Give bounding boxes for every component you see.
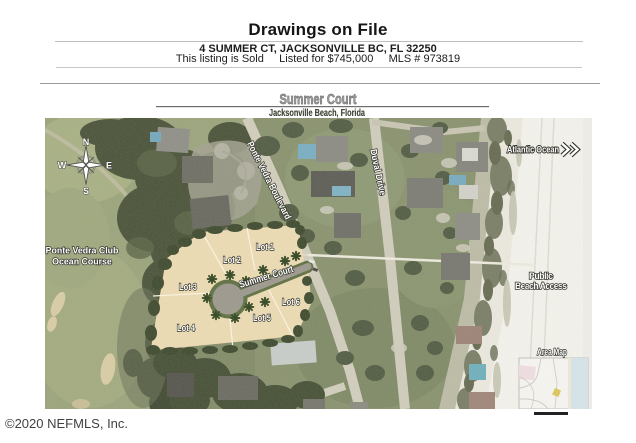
svg-text:E: E <box>106 161 112 171</box>
svg-text:Area Map: Area Map <box>537 347 567 357</box>
svg-text:W: W <box>58 161 67 171</box>
svg-text:Lot 2: Lot 2 <box>223 255 241 265</box>
svg-text:Public: Public <box>529 271 553 281</box>
svg-text:Lot 6: Lot 6 <box>282 297 300 307</box>
svg-text:Summer Court: Summer Court <box>280 92 357 108</box>
svg-text:Lot 4: Lot 4 <box>177 323 195 333</box>
svg-text:Lot 3: Lot 3 <box>179 282 197 292</box>
svg-text:Ocean Course: Ocean Course <box>52 257 112 267</box>
svg-text:Atlantic Ocean: Atlantic Ocean <box>507 145 559 156</box>
svg-text:S: S <box>83 186 89 196</box>
svg-text:Ponte Vedra Club: Ponte Vedra Club <box>46 246 119 256</box>
svg-text:Lot 5: Lot 5 <box>253 313 271 323</box>
svg-text:Lot 1: Lot 1 <box>256 242 274 252</box>
svg-text:N: N <box>83 137 90 147</box>
svg-text:Beach Access: Beach Access <box>515 281 567 291</box>
